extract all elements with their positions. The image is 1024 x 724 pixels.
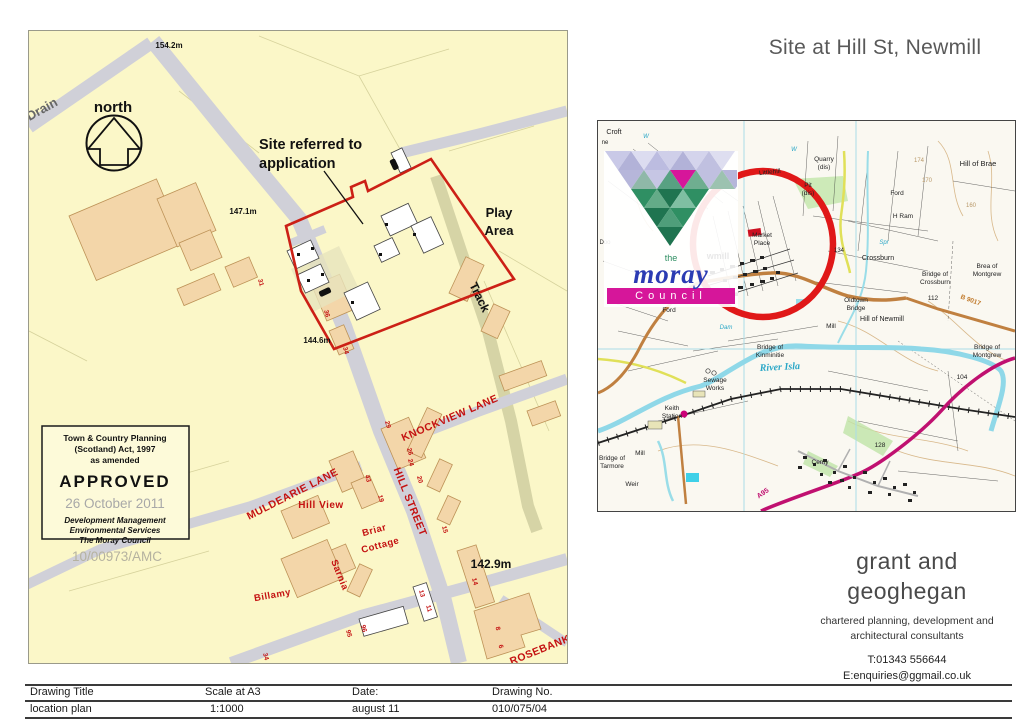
- svg-text:Cemy: Cemy: [812, 459, 830, 466]
- svg-text:Kinminitie: Kinminitie: [756, 352, 785, 359]
- firm-phone: T:01343 556644: [790, 652, 1024, 668]
- svg-text:(Scotland) Act, 1997: (Scotland) Act, 1997: [75, 444, 156, 454]
- firm-tagline1: chartered planning, development and: [790, 614, 1024, 629]
- svg-text:Montgrew: Montgrew: [973, 271, 1002, 278]
- svg-text:River Isla: River Isla: [758, 361, 800, 374]
- title-block-rule-bottom: [25, 717, 1012, 719]
- svg-text:Bridge: Bridge: [847, 305, 866, 312]
- svg-text:174: 174: [914, 158, 925, 164]
- svg-text:(dis): (dis): [818, 164, 831, 171]
- svg-text:(dis): (dis): [802, 190, 815, 197]
- firm-name-line2: geoghegan: [790, 576, 1024, 606]
- logo-moray: moray: [604, 262, 738, 286]
- svg-text:154.2m: 154.2m: [155, 41, 182, 50]
- os-extract-map: CroftneWWQuarry(dis)LittlehillPit(dis)Hi…: [597, 120, 1016, 512]
- svg-text:Keith: Keith: [665, 405, 680, 412]
- svg-text:Spr: Spr: [879, 240, 889, 246]
- svg-text:APPROVED: APPROVED: [59, 472, 170, 491]
- svg-text:Bridge of: Bridge of: [757, 344, 783, 351]
- firm-email: E:enquiries@ggmail.co.uk: [790, 668, 1024, 684]
- svg-text:Area: Area: [485, 223, 515, 238]
- svg-text:H Ram: H Ram: [893, 213, 913, 220]
- svg-text:Mill: Mill: [826, 323, 836, 330]
- moray-council-logo: the moray Council: [604, 151, 738, 307]
- svg-text:Bridge of: Bridge of: [922, 271, 948, 278]
- svg-text:Play: Play: [486, 205, 514, 220]
- svg-text:Development Management: Development Management: [64, 516, 166, 525]
- svg-text:Tarmore: Tarmore: [600, 463, 624, 470]
- svg-text:26 October 2011: 26 October 2011: [65, 496, 165, 511]
- svg-text:Works: Works: [706, 385, 725, 392]
- svg-text:Ford: Ford: [890, 190, 904, 197]
- site-note-line1: Site referred to: [259, 137, 362, 153]
- svg-text:128: 128: [875, 442, 886, 449]
- svg-text:north: north: [94, 99, 132, 116]
- title-block-value-scale: 1:1000: [210, 703, 244, 715]
- svg-text:Crossburn: Crossburn: [920, 279, 950, 286]
- svg-text:Crossburn: Crossburn: [862, 255, 894, 262]
- svg-text:Bridge of: Bridge of: [974, 344, 1000, 351]
- logo-triangle-mosaic: [605, 151, 737, 248]
- svg-text:Ford: Ford: [662, 307, 676, 314]
- svg-text:Sewage: Sewage: [703, 377, 727, 384]
- svg-text:Dam: Dam: [720, 325, 733, 331]
- svg-text:Hill of Newmill: Hill of Newmill: [860, 316, 904, 323]
- svg-text:147.1m: 147.1m: [229, 207, 256, 216]
- svg-text:Market: Market: [752, 232, 772, 239]
- title-block-value-date: august 11: [352, 703, 400, 715]
- firm-name-line1: grant and: [790, 546, 1024, 576]
- title-block-header-drawing-title: Drawing Title: [30, 686, 94, 698]
- firm-tagline2: architectural consultants: [790, 629, 1024, 644]
- title-block-value-drawing-no: 010/075/04: [492, 703, 547, 715]
- svg-text:160: 160: [966, 203, 977, 209]
- svg-text:Town & Country Planning: Town & Country Planning: [63, 433, 166, 443]
- svg-text:170: 170: [922, 178, 933, 184]
- svg-text:Place: Place: [754, 240, 771, 247]
- svg-text:Station: Station: [662, 413, 683, 420]
- svg-text:134: 134: [834, 248, 845, 254]
- svg-text:Hill of Brae: Hill of Brae: [960, 159, 997, 168]
- svg-text:Mill: Mill: [635, 450, 645, 457]
- page-title: Site at Hill St, Newmill: [730, 36, 1020, 60]
- title-block-value-drawing-title: location plan: [30, 703, 92, 715]
- svg-text:142.9m: 142.9m: [471, 557, 512, 571]
- svg-text:Brea of: Brea of: [977, 263, 998, 270]
- svg-text:ne: ne: [602, 140, 609, 146]
- svg-text:Environmental Services: Environmental Services: [70, 526, 161, 535]
- title-block-header-drawing-no: Drawing No.: [492, 686, 553, 698]
- svg-text:Bridge of: Bridge of: [599, 455, 625, 462]
- title-block-rule-mid: [25, 700, 1012, 702]
- title-block-header-date: Date:: [352, 686, 378, 698]
- svg-text:Pit: Pit: [804, 182, 812, 189]
- svg-text:Hill View: Hill View: [298, 500, 343, 511]
- svg-text:Croft: Croft: [606, 129, 621, 136]
- location-plan-map: Site referred to application Drainnorth1…: [28, 30, 568, 664]
- svg-text:112: 112: [928, 295, 939, 302]
- application-ref: 10/00973/AMC: [72, 549, 162, 564]
- logo-council: Council: [607, 288, 735, 304]
- site-note-line2: application: [259, 156, 336, 172]
- svg-text:104: 104: [957, 374, 968, 381]
- svg-text:Oldtown: Oldtown: [844, 297, 868, 304]
- title-block-header-scale: Scale at A3: [205, 686, 261, 698]
- location-plan-canvas: Site referred to application Drainnorth1…: [29, 31, 567, 663]
- svg-text:Weir: Weir: [625, 481, 639, 488]
- svg-text:Montgrew: Montgrew: [973, 352, 1002, 359]
- page: { "header": { "title": "Site at Hill St,…: [0, 0, 1024, 724]
- svg-text:144.6m: 144.6m: [303, 336, 330, 345]
- svg-text:Quarry: Quarry: [814, 156, 835, 163]
- svg-text:as amended: as amended: [90, 455, 139, 465]
- svg-text:The Moray Council: The Moray Council: [79, 536, 151, 545]
- firm-block: grant and geoghegan chartered planning, …: [790, 546, 1024, 684]
